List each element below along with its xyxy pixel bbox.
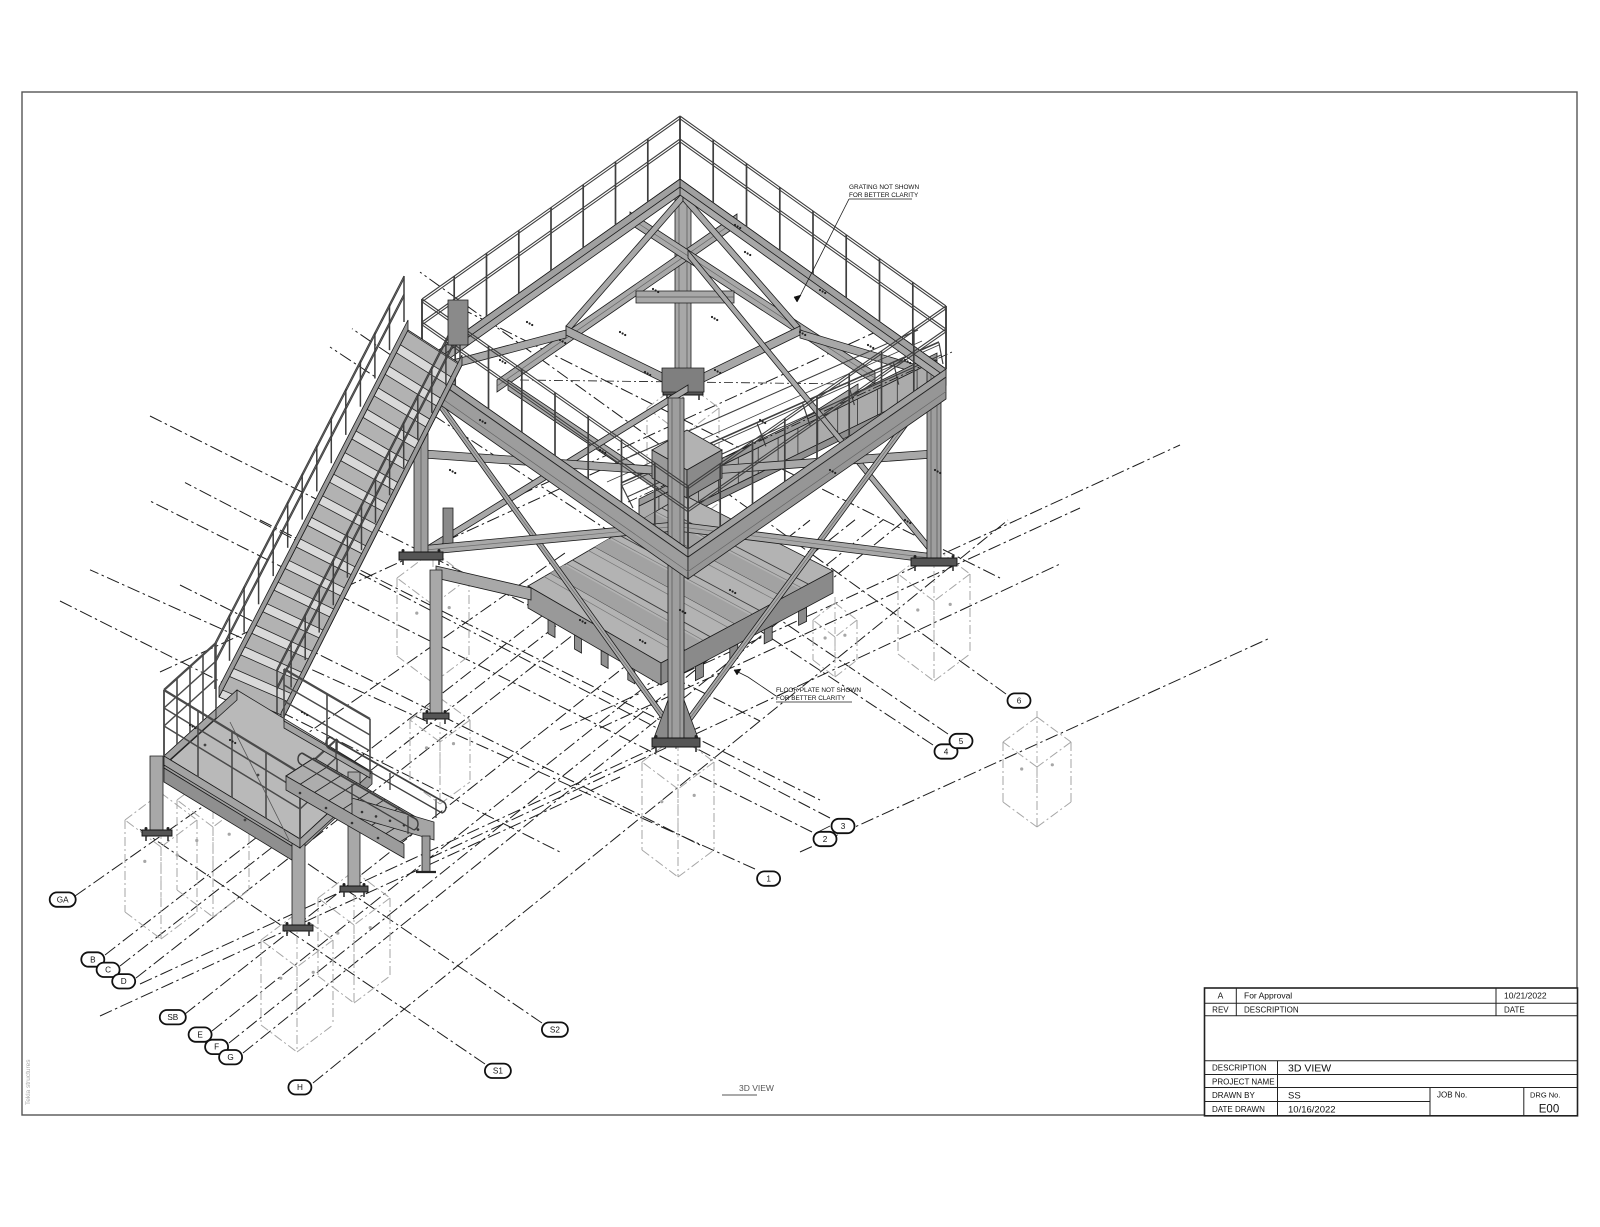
svg-text:5: 5	[959, 737, 964, 746]
svg-text:B: B	[90, 955, 96, 964]
svg-text:10/21/2022: 10/21/2022	[1504, 991, 1547, 1001]
svg-text:F: F	[214, 1043, 219, 1052]
svg-text:E: E	[197, 1030, 203, 1039]
svg-text:DATE: DATE	[1504, 1006, 1525, 1015]
svg-text:3: 3	[841, 822, 846, 831]
svg-text:S1: S1	[493, 1067, 503, 1076]
svg-text:6: 6	[1017, 696, 1022, 705]
svg-text:JOB No.: JOB No.	[1437, 1091, 1467, 1100]
svg-text:FOR BETTER CLARITY: FOR BETTER CLARITY	[849, 192, 919, 199]
svg-text:DESCRIPTION: DESCRIPTION	[1244, 1006, 1299, 1015]
svg-text:GA: GA	[57, 895, 69, 904]
svg-text:DRAWN BY: DRAWN BY	[1212, 1091, 1255, 1100]
svg-text:For Approval: For Approval	[1244, 991, 1292, 1001]
svg-text:1: 1	[766, 874, 771, 883]
svg-text:A: A	[1218, 991, 1224, 1001]
svg-text:FLOOR PLATE NOT SHOWN: FLOOR PLATE NOT SHOWN	[776, 687, 861, 694]
svg-text:C: C	[105, 966, 111, 975]
svg-text:REV: REV	[1212, 1006, 1229, 1015]
svg-text:S2: S2	[550, 1025, 560, 1034]
svg-text:GRATING NOT SHOWN: GRATING NOT SHOWN	[849, 184, 919, 191]
svg-text:3D VIEW: 3D VIEW	[739, 1083, 774, 1093]
svg-text:DESCRIPTION: DESCRIPTION	[1212, 1064, 1267, 1073]
svg-text:DRG No.: DRG No.	[1530, 1091, 1560, 1100]
svg-text:3D VIEW: 3D VIEW	[1288, 1063, 1331, 1075]
svg-text:4: 4	[944, 747, 949, 756]
svg-text:10/16/2022: 10/16/2022	[1288, 1105, 1336, 1116]
svg-text:E00: E00	[1539, 1104, 1559, 1116]
svg-text:FOR BETTER CLARITY: FOR BETTER CLARITY	[776, 695, 846, 702]
svg-text:DATE DRAWN: DATE DRAWN	[1212, 1105, 1265, 1114]
svg-text:Tekla structures: Tekla structures	[25, 1059, 32, 1105]
svg-text:PROJECT NAME: PROJECT NAME	[1212, 1077, 1275, 1086]
svg-text:D: D	[121, 977, 127, 986]
svg-text:H: H	[297, 1083, 303, 1092]
svg-text:SS: SS	[1288, 1091, 1301, 1102]
svg-text:G: G	[227, 1053, 233, 1062]
svg-text:2: 2	[823, 835, 828, 844]
svg-text:SB: SB	[167, 1013, 178, 1022]
